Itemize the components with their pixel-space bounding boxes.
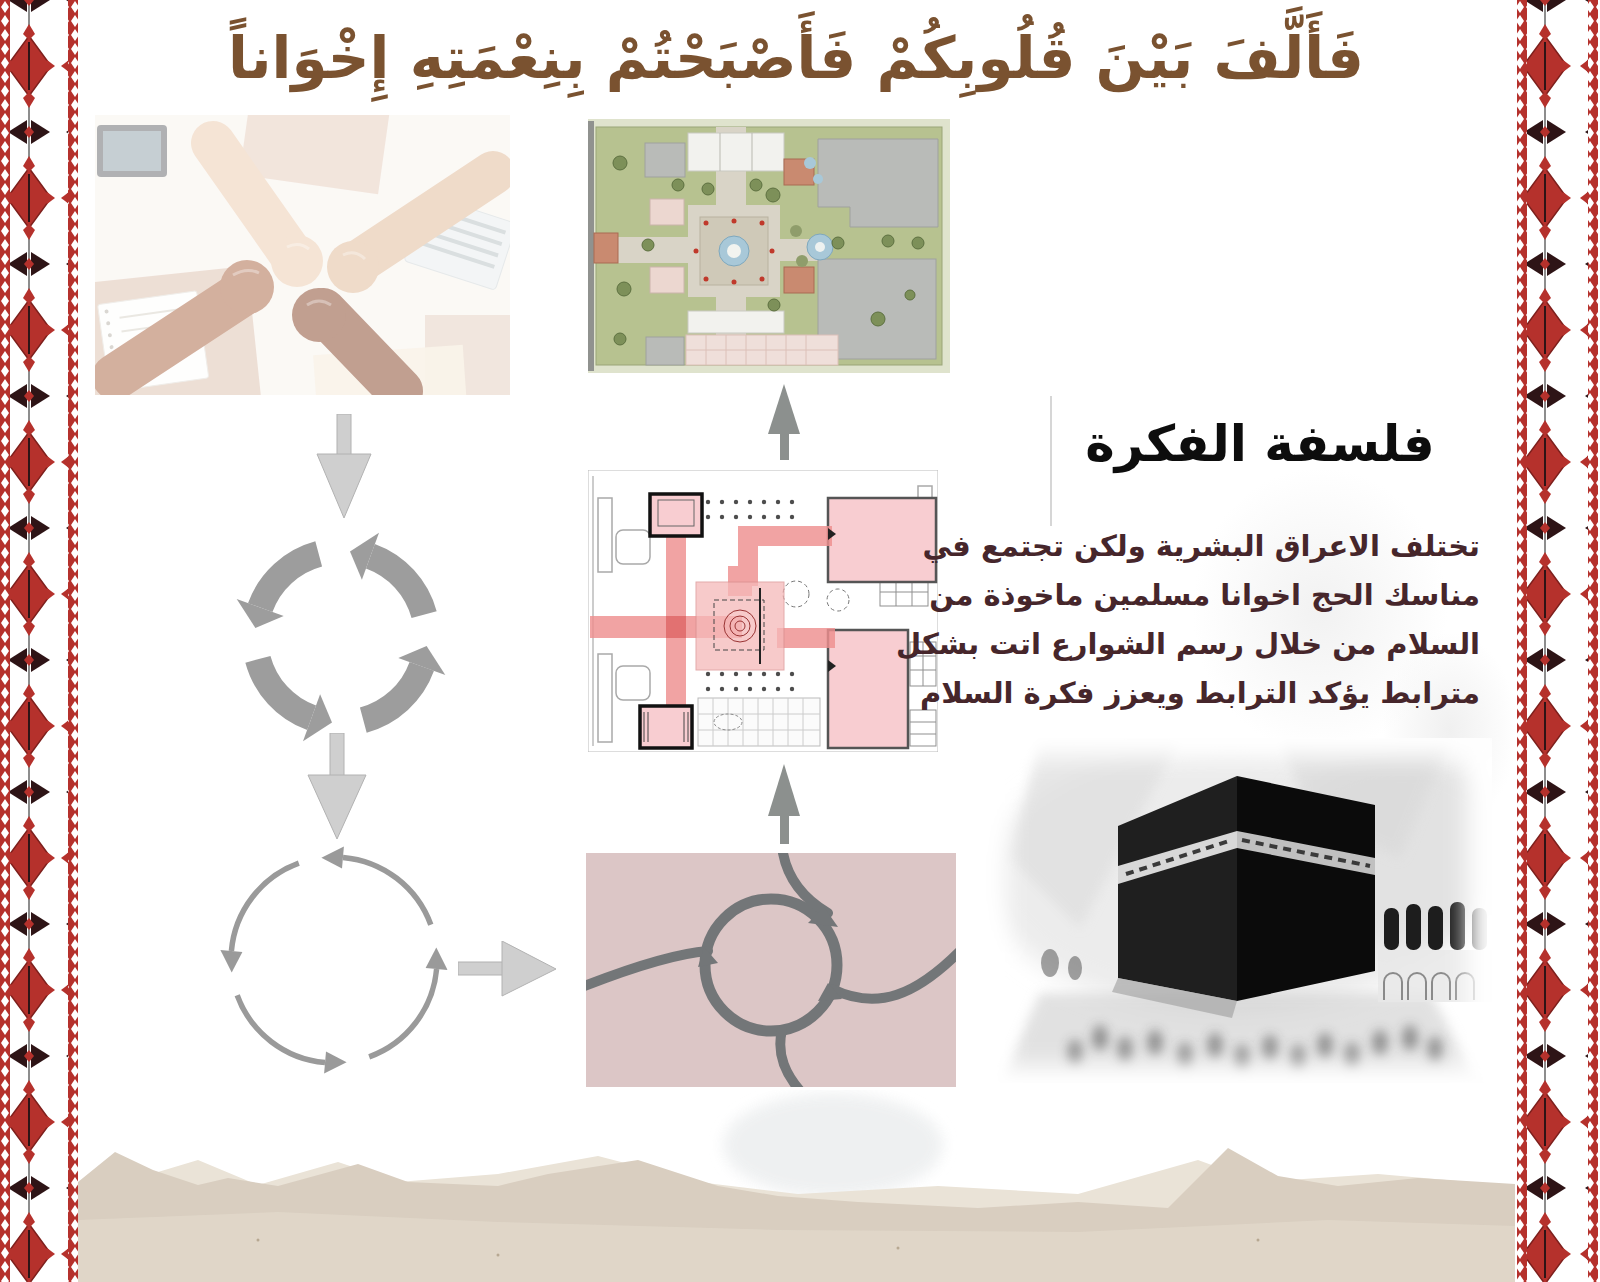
up-arrow-icon: [766, 764, 802, 844]
right-arrow-icon: [458, 941, 558, 997]
paragraph-line: تختلف الاعراق البشرية ولكن تجتمع في: [975, 522, 1480, 571]
paragraph-line: مناسك الحج اخوانا مسلمين ماخوذة من: [975, 571, 1480, 620]
up-arrow-icon: [766, 384, 802, 460]
paragraph-line: السلام من خلال رسم الشوارع اتت بشكل: [975, 620, 1480, 669]
desert-mountains-watercolor: [78, 1090, 1515, 1282]
cycle-ring-diagram: [217, 843, 451, 1077]
down-arrow-icon: [304, 733, 370, 841]
landscape-site-plan: [588, 119, 950, 373]
cycle-arrows-diagram: [231, 527, 451, 747]
concept-paragraph: تختلف الاعراق البشرية ولكن تجتمع في مناس…: [975, 522, 1480, 718]
roundabout-road-network-diagram: [586, 853, 956, 1087]
concept-heading: فلسفة الفكرة: [1055, 400, 1465, 488]
kaaba-pilgrims-photo: [980, 738, 1492, 1083]
divider-line: [1050, 396, 1052, 526]
clasped-hands-unity-photo: [95, 115, 510, 395]
circulation-floor-plan: [588, 470, 938, 752]
tatreez-border-right: [1515, 0, 1600, 1282]
title-verse: فَأَلَّفَ بَيْنَ قُلُوبِكُمْ فَأَصْبَحْت…: [80, 4, 1512, 112]
paragraph-line: مترابط يؤكد الترابط ويعزز فكرة السلام: [975, 669, 1480, 718]
down-arrow-icon: [309, 414, 379, 520]
tatreez-border-left: [0, 0, 78, 1282]
